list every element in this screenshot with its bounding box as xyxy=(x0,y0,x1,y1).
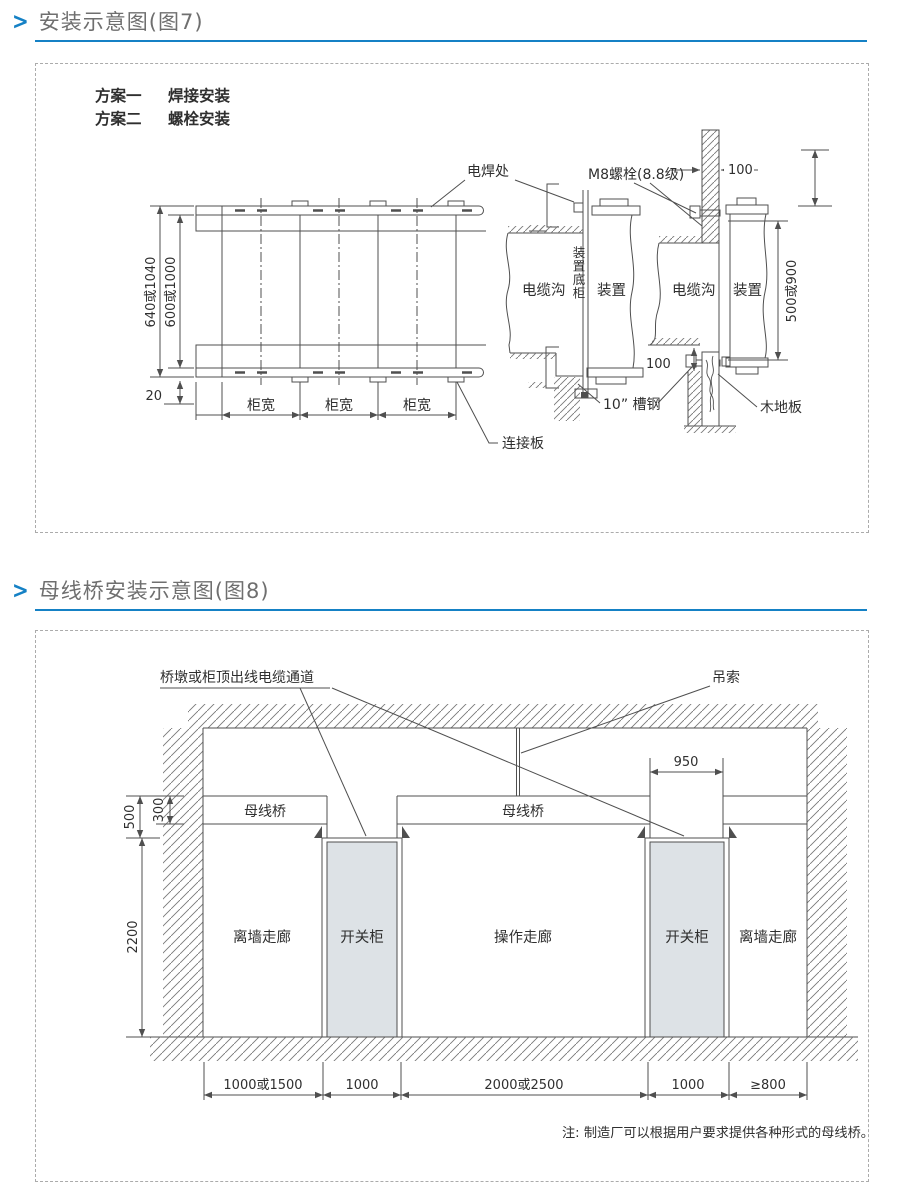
dim-above-total: 500 xyxy=(123,805,138,830)
label-switch-cabinet-right: 开关柜 xyxy=(665,929,709,946)
label-corridor-center: 操作走廊 xyxy=(494,929,552,946)
label-cable-trench-left: 电缆沟 xyxy=(522,282,566,299)
catalog-page: > 安装示意图(图7) > 母线桥安装示意图(图8) 方案一 焊接安装 方案二 … xyxy=(0,0,900,1193)
dim-bottom-2: 1000 xyxy=(345,1078,378,1093)
label-cable-trench-right: 电缆沟 xyxy=(672,282,716,299)
section-header-fig7: > 安装示意图(图7) xyxy=(12,6,204,36)
welded-section-detail xyxy=(506,184,692,421)
label-device-base-cabinet: 装置底柜 xyxy=(571,246,584,346)
scheme-legend: 方案一 焊接安装 方案二 螺栓安装 xyxy=(95,86,231,128)
section-title-fig7: 安装示意图(图7) xyxy=(39,6,204,36)
dim-pier-width: 950 xyxy=(674,755,699,770)
dim-bottom-3: 2000或2500 xyxy=(484,1078,563,1093)
plan-view xyxy=(196,198,486,385)
plan-dimensions xyxy=(150,180,574,443)
room-structure xyxy=(150,704,858,1061)
label-m8-bolt: M8螺栓(8.8级) xyxy=(588,167,684,183)
note-text: 注: 制造厂可以根据用户要求提供各种形式的母线桥。 xyxy=(562,1124,867,1141)
dim-edge-offset: 20 xyxy=(145,389,162,404)
label-device-left: 装置 xyxy=(597,282,626,299)
label-corridor-left: 离墙走廊 xyxy=(233,929,291,946)
label-connection-plate: 连接板 xyxy=(502,435,544,452)
dim-bottom-5: ≥800 xyxy=(750,1078,786,1093)
label-sling: 吊索 xyxy=(712,669,740,686)
scheme2-label: 方案二 xyxy=(95,109,142,128)
label-corridor-right: 离墙走廊 xyxy=(739,929,797,946)
dim-cabinet-width-2: 柜宽 xyxy=(325,397,353,414)
label-device-right: 装置 xyxy=(733,282,762,299)
dim-floor-gap: 100 xyxy=(646,357,671,372)
scheme2-method: 螺栓安装 xyxy=(168,109,231,128)
label-channel-steel: 10” 槽钢 xyxy=(603,397,661,413)
dim-wall-thickness: 100 xyxy=(728,163,753,178)
scheme1-method: 焊接安装 xyxy=(168,86,231,105)
label-switch-cabinet-left: 开关柜 xyxy=(340,929,384,946)
section-marker-icon: > xyxy=(12,579,29,602)
dim-device-height: 500或900 xyxy=(785,260,800,323)
label-busbar-bridge-left: 母线桥 xyxy=(244,804,286,820)
label-cable-channel: 桥墩或柜顶出线电缆通道 xyxy=(160,670,314,686)
dim-inner-height: 600或1000 xyxy=(164,257,179,328)
label-wood-floor: 木地板 xyxy=(760,400,802,416)
section-header-fig8: > 母线桥安装示意图(图8) xyxy=(12,575,270,605)
dim-room-height: 2200 xyxy=(126,920,141,953)
label-weld-spot: 电焊处 xyxy=(467,164,509,180)
dim-cabinet-width-3: 柜宽 xyxy=(403,397,431,414)
scheme1-label: 方案一 xyxy=(95,86,142,105)
section-rule xyxy=(35,609,867,611)
figure8-diagram: 桥墩或柜顶出线电缆通道 吊索 950 母线桥 母线桥 500 300 2200 … xyxy=(35,630,867,1180)
dim-bridge-height: 300 xyxy=(152,798,167,823)
dim-bottom-1: 1000或1500 xyxy=(223,1078,302,1093)
label-busbar-bridge-mid: 母线桥 xyxy=(502,804,544,820)
figure7-diagram: 方案一 焊接安装 方案二 螺栓安装 xyxy=(35,63,867,531)
dim-outer-height: 640或1040 xyxy=(144,257,159,328)
dim-cabinet-width-1: 柜宽 xyxy=(247,397,275,414)
section-title-fig8: 母线桥安装示意图(图8) xyxy=(39,575,270,605)
dim-bottom-4: 1000 xyxy=(671,1078,704,1093)
section-rule xyxy=(35,40,867,42)
section-marker-icon: > xyxy=(12,10,29,33)
